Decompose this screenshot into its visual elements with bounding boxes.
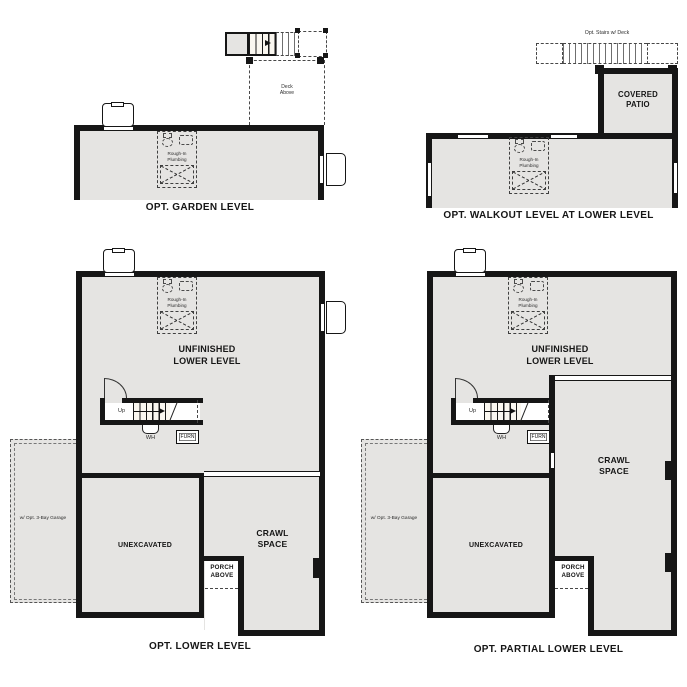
door-swing-arc [455,378,478,398]
floorplan-sheet: Deck Above Rough-In Plumbing [0,0,687,687]
wall [671,277,677,636]
furnace-label: FURN [532,434,546,440]
tub-icon [530,281,544,291]
up-arrow-head [510,408,516,414]
shower-box-icon [511,311,545,330]
furnace: FURN [527,430,550,444]
wall [427,612,555,618]
porch-above-label: PORCH ABOVE [551,564,595,580]
unexcavated-label: UNEXCAVATED [441,541,551,550]
up-arrow-line [485,411,511,412]
rough-in-plumbing-area: Rough-In Plumbing [508,277,548,334]
wall [427,473,555,478]
up-label: Up [464,408,481,415]
crawl-access-opening [550,453,555,468]
toilet-icon [513,284,524,293]
foundation-line [555,375,671,381]
wall-jog [665,553,671,572]
opt-garage-footprint: w/ Opt. 3-Bay Garage [361,439,427,603]
crawl-space-label: CRAWL SPACE [570,455,658,477]
wall [588,630,677,636]
window [456,272,485,277]
rough-in-label: Rough-In Plumbing [509,297,547,308]
wall-jog [665,461,671,480]
water-heater-label: WH [491,435,512,442]
unfinished-label: UNFINISHED LOWER LEVEL [473,344,647,367]
water-heater [493,425,510,434]
toilet-tank-icon [514,279,523,284]
plan-title: OPT. PARTIAL LOWER LEVEL [410,644,687,655]
porch-dashed-line [555,588,588,589]
window-well-step [463,248,476,253]
stairs: Up WH FURN [451,378,557,446]
plan-partial-lower-level: w/ Opt. 3-Bay Garage Rough-In Plumbing U… [0,0,687,687]
opt-garage-label: w/ Opt. 3-Bay Garage [363,516,425,522]
